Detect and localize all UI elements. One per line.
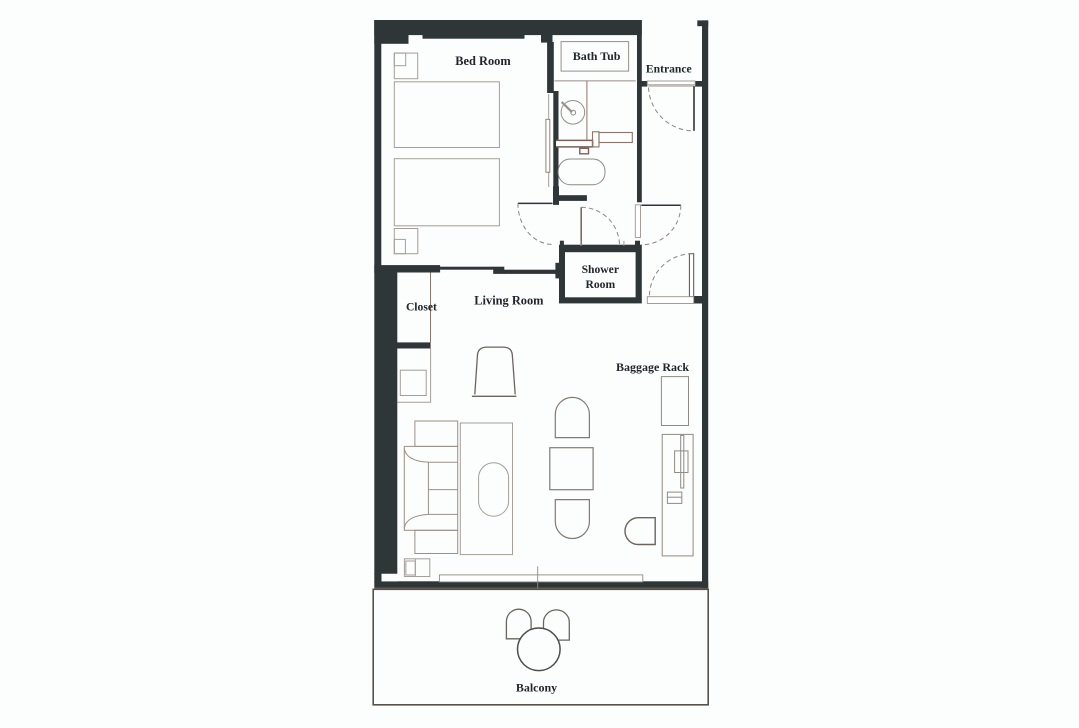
svg-text:Bed Room: Bed Room — [455, 54, 511, 68]
svg-text:Closet: Closet — [406, 301, 437, 314]
svg-text:Shower: Shower — [582, 263, 619, 276]
svg-text:Balcony: Balcony — [516, 681, 557, 695]
svg-text:Entrance: Entrance — [646, 63, 692, 76]
svg-text:Bath Tub: Bath Tub — [573, 49, 621, 63]
svg-text:Baggage Rack: Baggage Rack — [616, 360, 689, 374]
svg-text:Room: Room — [585, 278, 615, 291]
svg-text:Living Room: Living Room — [474, 293, 544, 307]
